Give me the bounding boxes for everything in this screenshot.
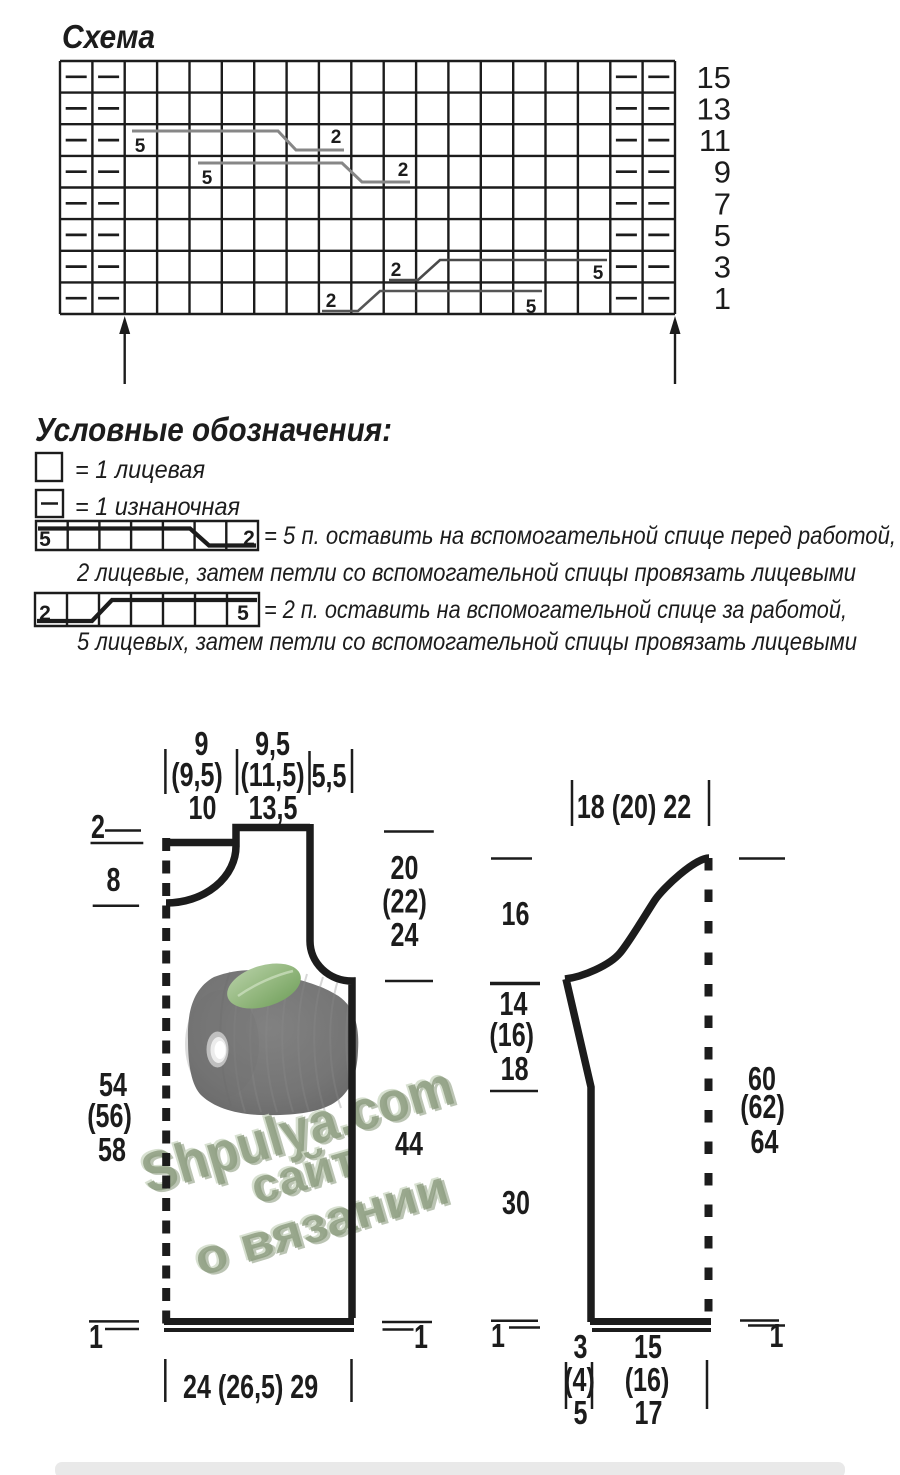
svg-text:15: 15 bbox=[634, 1329, 662, 1366]
svg-text:2: 2 bbox=[398, 160, 409, 181]
svg-text:58: 58 bbox=[98, 1132, 126, 1169]
svg-text:10: 10 bbox=[189, 790, 217, 827]
svg-text:13: 13 bbox=[697, 91, 731, 126]
svg-text:1: 1 bbox=[89, 1319, 103, 1356]
svg-text:2: 2 bbox=[326, 291, 337, 312]
svg-text:2: 2 bbox=[331, 127, 342, 148]
svg-text:17: 17 bbox=[635, 1395, 663, 1432]
svg-text:24 (26,5) 29: 24 (26,5) 29 bbox=[183, 1369, 318, 1406]
svg-text:1: 1 bbox=[770, 1318, 784, 1355]
svg-text:1: 1 bbox=[414, 1319, 428, 1356]
svg-text:20: 20 bbox=[391, 850, 419, 887]
svg-text:1: 1 bbox=[491, 1318, 505, 1355]
svg-text:24: 24 bbox=[391, 917, 419, 954]
svg-text:18 (20) 22: 18 (20) 22 bbox=[577, 789, 691, 826]
svg-text:16: 16 bbox=[502, 896, 530, 933]
svg-text:(4): (4) bbox=[564, 1362, 595, 1399]
svg-text:5: 5 bbox=[39, 528, 51, 551]
svg-text:5: 5 bbox=[574, 1395, 588, 1432]
svg-text:(16): (16) bbox=[489, 1017, 534, 1054]
svg-text:3: 3 bbox=[714, 250, 731, 285]
svg-text:5: 5 bbox=[714, 218, 731, 253]
svg-text:15: 15 bbox=[697, 60, 731, 95]
svg-text:2: 2 bbox=[391, 260, 402, 281]
svg-text:2: 2 bbox=[39, 602, 51, 625]
svg-text:1: 1 bbox=[714, 281, 731, 316]
svg-text:(62): (62) bbox=[740, 1089, 785, 1126]
svg-text:2 лицевые, затем петли со вспо: 2 лицевые, затем петли со вспомогательно… bbox=[76, 559, 856, 587]
svg-text:= 1 лицевая: = 1 лицевая bbox=[75, 456, 205, 484]
svg-text:3: 3 bbox=[574, 1329, 588, 1366]
svg-text:= 2 п. оставить на вспомогател: = 2 п. оставить на вспомогательной спице… bbox=[264, 596, 847, 624]
svg-text:5: 5 bbox=[202, 168, 213, 189]
svg-text:5,5: 5,5 bbox=[312, 758, 347, 795]
svg-text:8: 8 bbox=[107, 862, 121, 899]
svg-text:13,5: 13,5 bbox=[249, 790, 298, 827]
svg-text:30: 30 bbox=[502, 1185, 530, 1222]
svg-text:44: 44 bbox=[395, 1126, 423, 1163]
svg-text:2: 2 bbox=[243, 527, 255, 550]
svg-text:Схема: Схема bbox=[62, 18, 155, 55]
svg-text:(9,5): (9,5) bbox=[171, 757, 223, 794]
svg-text:(22): (22) bbox=[382, 883, 427, 920]
svg-text:5 лицевых, затем петли со вспо: 5 лицевых, затем петли со вспомогательно… bbox=[77, 628, 857, 656]
svg-text:(16): (16) bbox=[625, 1362, 670, 1399]
svg-text:= 1 изнаночная: = 1 изнаночная bbox=[75, 493, 240, 521]
svg-text:5: 5 bbox=[593, 263, 604, 284]
svg-text:(56): (56) bbox=[87, 1098, 132, 1135]
svg-text:(11,5): (11,5) bbox=[240, 757, 304, 794]
svg-text:64: 64 bbox=[751, 1124, 779, 1161]
svg-text:9: 9 bbox=[714, 155, 731, 190]
svg-text:5: 5 bbox=[135, 136, 146, 157]
svg-text:7: 7 bbox=[714, 186, 731, 221]
svg-text:18: 18 bbox=[501, 1051, 529, 1088]
svg-text:5: 5 bbox=[237, 602, 249, 625]
svg-text:= 5 п. оставить на вспомогател: = 5 п. оставить на вспомогательной спице… bbox=[264, 522, 896, 550]
svg-text:2: 2 bbox=[91, 809, 105, 846]
svg-text:Условные обозначения:: Условные обозначения: bbox=[35, 411, 392, 448]
svg-text:5: 5 bbox=[526, 297, 537, 318]
svg-text:11: 11 bbox=[699, 123, 731, 158]
